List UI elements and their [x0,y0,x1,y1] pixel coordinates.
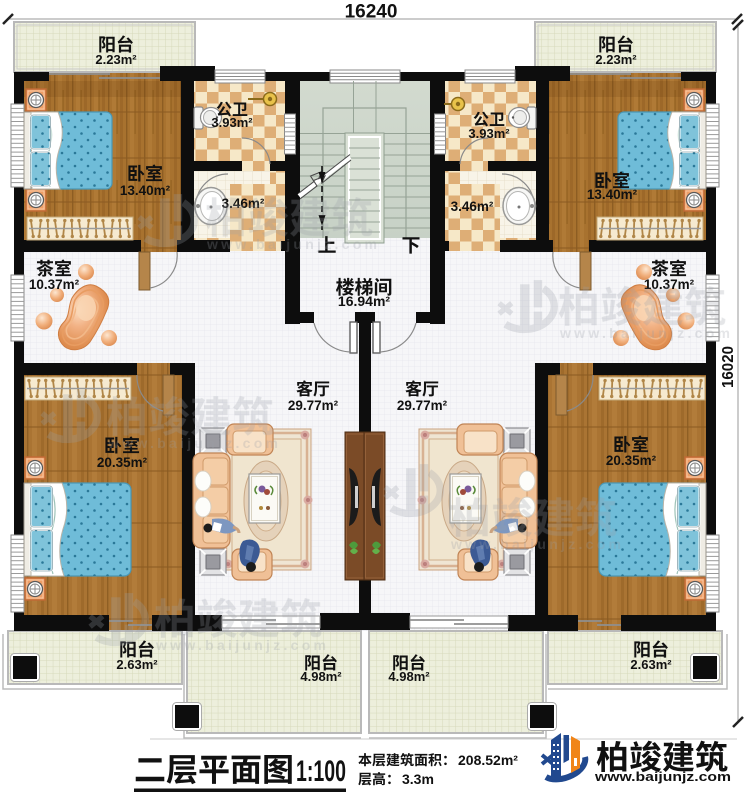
svg-text:13.40m²: 13.40m² [587,187,638,202]
svg-text:20.35m²: 20.35m² [606,453,657,468]
svg-text:16020: 16020 [720,346,737,388]
svg-text:2.23m²: 2.23m² [595,52,637,67]
svg-text:20.35m²: 20.35m² [97,455,148,470]
svg-text:29.77m²: 29.77m² [288,398,339,413]
svg-text:4.98m²: 4.98m² [300,669,342,684]
svg-text:www.baijunjz.com: www.baijunjz.com [594,769,731,784]
svg-text:2.63m²: 2.63m² [116,657,158,672]
svg-text:13.40m²: 13.40m² [120,183,171,198]
svg-text:3.93m²: 3.93m² [468,126,510,141]
svg-text:4.98m²: 4.98m² [388,669,430,684]
svg-text:208.52m²: 208.52m² [458,752,518,768]
svg-text:16240: 16240 [345,2,398,23]
svg-text:3.46m²: 3.46m² [451,199,494,214]
svg-text:10.37m²: 10.37m² [29,277,80,292]
svg-text:3.3m: 3.3m [402,771,434,787]
svg-text:1:100: 1:100 [296,755,346,788]
svg-text:2.23m²: 2.23m² [95,52,137,67]
svg-text:16.94m²: 16.94m² [338,293,390,309]
svg-text:2.63m²: 2.63m² [630,657,672,672]
svg-text:3.93m²: 3.93m² [211,115,253,130]
svg-text:29.77m²: 29.77m² [397,398,448,413]
